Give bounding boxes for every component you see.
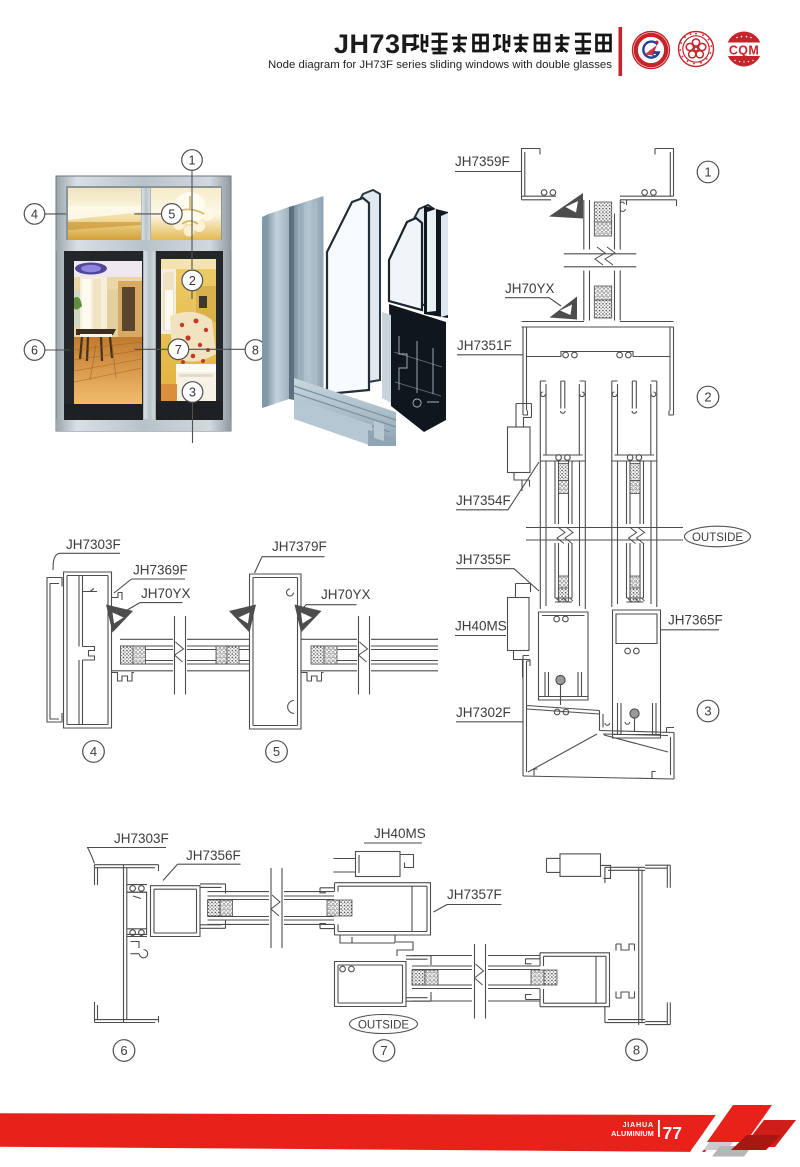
svg-text:2: 2 xyxy=(189,274,196,288)
svg-text:3: 3 xyxy=(704,704,711,719)
svg-text:JH7369F: JH7369F xyxy=(133,563,188,578)
svg-text:JH7351F: JH7351F xyxy=(457,338,512,353)
svg-text:1: 1 xyxy=(189,154,196,168)
svg-text:5: 5 xyxy=(168,207,175,221)
svg-text:JH7354F: JH7354F xyxy=(456,493,511,508)
svg-text:4: 4 xyxy=(90,744,97,759)
svg-text:JH70YX: JH70YX xyxy=(141,586,191,601)
svg-text:6: 6 xyxy=(31,344,38,358)
svg-text:7: 7 xyxy=(380,1043,387,1058)
svg-text:JH40MS: JH40MS xyxy=(374,826,426,841)
svg-text:JH7303F: JH7303F xyxy=(114,831,169,846)
svg-text:JH70YX: JH70YX xyxy=(505,281,555,296)
svg-text:JH7356F: JH7356F xyxy=(186,848,241,863)
svg-text:JH7357F: JH7357F xyxy=(447,887,502,902)
svg-text:JH73F: JH73F xyxy=(334,29,418,59)
svg-text:JH7359F: JH7359F xyxy=(455,154,510,169)
svg-text:CQM: CQM xyxy=(729,44,759,58)
svg-text:JH7379F: JH7379F xyxy=(272,539,327,554)
svg-text:77: 77 xyxy=(663,1123,682,1143)
svg-text:8: 8 xyxy=(633,1042,640,1057)
svg-text:6: 6 xyxy=(120,1043,127,1058)
svg-text:4: 4 xyxy=(31,207,38,221)
svg-text:JH7355F: JH7355F xyxy=(456,552,511,567)
svg-text:JH70YX: JH70YX xyxy=(321,587,371,602)
svg-text:JH7365F: JH7365F xyxy=(668,613,723,628)
svg-text:7: 7 xyxy=(175,343,182,357)
svg-text:OUTSIDE: OUTSIDE xyxy=(358,1019,409,1031)
svg-text:1: 1 xyxy=(704,165,711,180)
svg-text:JH40MS: JH40MS xyxy=(455,619,507,634)
svg-text:5: 5 xyxy=(273,744,280,759)
svg-text:ALUMINIUM: ALUMINIUM xyxy=(611,1129,654,1138)
svg-text:2: 2 xyxy=(704,390,711,405)
svg-text:JIAHUA: JIAHUA xyxy=(622,1120,654,1129)
svg-text:OUTSIDE: OUTSIDE xyxy=(692,532,743,544)
svg-text:JH7302F: JH7302F xyxy=(456,705,511,720)
svg-text:JH7303F: JH7303F xyxy=(66,537,121,552)
svg-text:Node diagram for JH73F ser: Node diagram for JH73F series sliding wi… xyxy=(268,59,612,71)
svg-text:3: 3 xyxy=(189,386,196,400)
